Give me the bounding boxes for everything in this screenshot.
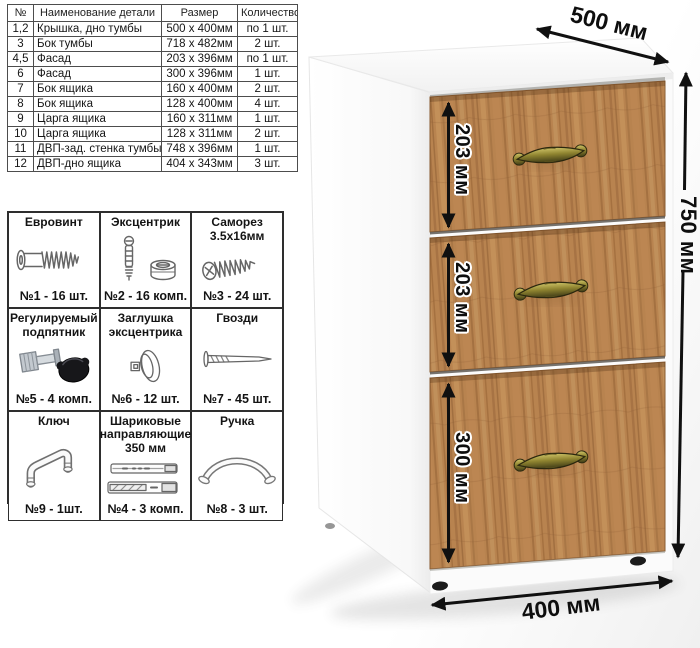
hardware-item-count: №8 - 3 шт. xyxy=(206,502,267,517)
parts-table-cell: Бок ящика xyxy=(34,82,162,97)
hardware-item-count: №2 - 16 комп. xyxy=(104,289,187,304)
hardware-item-count: №9 - 1шт. xyxy=(25,502,83,517)
hardware-item-title: Ключ xyxy=(38,415,70,429)
parts-table-cell: 500 х 400мм xyxy=(162,22,238,37)
parts-table-cell: 6 xyxy=(8,67,34,82)
parts-table-cell: 4 шт. xyxy=(238,97,298,112)
adjustable-foot-icon xyxy=(10,340,98,392)
parts-table-cell: Бок тумбы xyxy=(34,37,162,52)
parts-table: № Наименование детали Размер Количество … xyxy=(7,4,298,172)
hardware-item-title: Шариковые направляющие 350 мм xyxy=(100,415,191,456)
parts-table-cell: Крышка, дно тумбы xyxy=(34,22,162,37)
hardware-item-title: Гвозди xyxy=(216,312,258,326)
parts-table-cell: 1 шт. xyxy=(238,112,298,127)
parts-table-cell: 9 xyxy=(8,112,34,127)
parts-table-cell: 748 х 396мм xyxy=(162,142,238,157)
dimension-drawer-top-label: 203 мм xyxy=(450,124,472,196)
parts-table-body: 1,2Крышка, дно тумбы500 х 400ммпо 1 шт.3… xyxy=(8,22,298,172)
parts-table-header-row: № Наименование детали Размер Количество xyxy=(8,5,298,22)
parts-table-cell: 1 шт. xyxy=(238,142,298,157)
parts-table-cell: ДВП-дно ящика xyxy=(34,157,162,172)
parts-table-cell: 1,2 xyxy=(8,22,34,37)
arrow-height-upper xyxy=(685,73,687,190)
hardware-item-count: №3 - 24 шт. xyxy=(203,289,271,304)
hardware-item-title: Ручка xyxy=(220,415,254,429)
self-tapping-screw-icon xyxy=(193,243,281,289)
cam-cover-icon xyxy=(102,340,190,392)
assembly-instruction-sheet: 500 мм 750 мм 400 мм 203 мм 203 мм 300 м… xyxy=(0,0,700,648)
parts-table-cell: 11 xyxy=(8,142,34,157)
parts-table-cell: 160 х 311мм xyxy=(162,112,238,127)
hardware-item-self-tapping-screw: Саморез 3.5х16мм №3 - 24 шт. xyxy=(191,212,283,308)
hardware-item-hex-key: Ключ №9 - 1шт. xyxy=(8,411,100,521)
parts-table-row: 4,5Фасад203 х 396ммпо 1 шт. xyxy=(8,52,298,67)
hardware-item-count: №1 - 16 шт. xyxy=(20,289,88,304)
parts-table-cell: 4,5 xyxy=(8,52,34,67)
hardware-item-cam-cover: Заглушка эксцентрика №6 - 12 шт. xyxy=(100,308,192,410)
hardware-item-title: Евровинт xyxy=(25,216,83,230)
parts-table-cell: ДВП-зад. стенка тумбы xyxy=(34,142,162,157)
parts-table-row: 1,2Крышка, дно тумбы500 х 400ммпо 1 шт. xyxy=(8,22,298,37)
hardware-item-title: Заглушка эксцентрика xyxy=(102,312,190,339)
parts-table-row: 12ДВП-дно ящика404 х 343мм3 шт. xyxy=(8,157,298,172)
parts-table-cell: 300 х 396мм xyxy=(162,67,238,82)
hardware-item-eccentric-cam: Эксцентрик №2 - 16 комп. xyxy=(100,212,192,308)
parts-table-cell: Бок ящика xyxy=(34,97,162,112)
dimension-drawer-bottom-label: 300 мм xyxy=(450,432,472,504)
parts-table-cell: Фасад xyxy=(34,67,162,82)
parts-table-row: 8Бок ящика128 х 400мм4 шт. xyxy=(8,97,298,112)
parts-table-cell: Царга ящика xyxy=(34,127,162,142)
hardware-item-eurovint-screw: Евровинт №1 - 16 шт. xyxy=(8,212,100,308)
col-header-number: № xyxy=(8,5,34,22)
ball-slides-icon xyxy=(102,456,190,502)
hex-key-icon xyxy=(10,428,98,501)
parts-table-cell: 2 шт. xyxy=(238,127,298,142)
hardware-item-title: Эксцентрик xyxy=(111,216,180,230)
hardware-item-count: №4 - 3 комп. xyxy=(107,502,183,517)
col-header-name: Наименование детали xyxy=(34,5,162,22)
hardware-item-adjustable-foot: Регулируемый подпятник №5 - 4 комп. xyxy=(8,308,100,410)
parts-table-row: 7Бок ящика160 х 400мм2 шт. xyxy=(8,82,298,97)
dimension-height-label: 750 мм xyxy=(675,196,700,274)
parts-table-cell: 12 xyxy=(8,157,34,172)
parts-table-cell: 1 шт. xyxy=(238,67,298,82)
cabinet-side-panel xyxy=(309,57,432,594)
parts-table-cell: 2 шт. xyxy=(238,37,298,52)
hardware-item-title: Саморез 3.5х16мм xyxy=(193,216,281,243)
parts-table-cell: по 1 шт. xyxy=(238,22,298,37)
parts-table-row: 9Царга ящика160 х 311мм1 шт. xyxy=(8,112,298,127)
arrow-height-lower xyxy=(678,272,683,557)
hardware-item-count: №6 - 12 шт. xyxy=(111,392,179,407)
parts-table-cell: 3 xyxy=(8,37,34,52)
bow-handle-icon xyxy=(193,428,281,501)
nail-icon xyxy=(193,326,281,392)
parts-table-row: 11ДВП-зад. стенка тумбы748 х 396мм1 шт. xyxy=(8,142,298,157)
hardware-item-ball-slides: Шариковые направляющие 350 мм №4 - 3 ком… xyxy=(100,411,192,521)
hardware-item-bow-handle: Ручка №8 - 3 шт. xyxy=(191,411,283,521)
parts-table-cell: Фасад xyxy=(34,52,162,67)
hardware-item-count: №5 - 4 комп. xyxy=(16,392,92,407)
parts-table-cell: 128 х 311мм xyxy=(162,127,238,142)
parts-table-cell: 7 xyxy=(8,82,34,97)
parts-table-cell: 10 xyxy=(8,127,34,142)
hardware-legend-grid: Евровинт №1 - 16 шт.Эксцентрик №2 - 16 к… xyxy=(7,211,284,504)
col-header-size: Размер xyxy=(162,5,238,22)
parts-table-row: 10Царга ящика128 х 311мм2 шт. xyxy=(8,127,298,142)
hardware-item-count: №7 - 45 шт. xyxy=(203,392,271,407)
parts-table-cell: Царга ящика xyxy=(34,112,162,127)
parts-table-cell: 3 шт. xyxy=(238,157,298,172)
col-header-quantity: Количество xyxy=(238,5,298,22)
parts-table-cell: 2 шт. xyxy=(238,82,298,97)
eurovint-screw-icon xyxy=(10,230,98,290)
parts-table-cell: 128 х 400мм xyxy=(162,97,238,112)
eccentric-cam-icon xyxy=(102,230,190,290)
parts-table-cell: 718 х 482мм xyxy=(162,37,238,52)
dimension-drawer-middle-label: 203 мм xyxy=(450,262,472,334)
parts-table-cell: 8 xyxy=(8,97,34,112)
parts-table-cell: 160 х 400мм xyxy=(162,82,238,97)
parts-table-cell: 404 х 343мм xyxy=(162,157,238,172)
parts-table-cell: по 1 шт. xyxy=(238,52,298,67)
hardware-item-title: Регулируемый подпятник xyxy=(10,312,98,339)
parts-table-row: 3Бок тумбы718 х 482мм2 шт. xyxy=(8,37,298,52)
parts-table-cell: 203 х 396мм xyxy=(162,52,238,67)
parts-table-row: 6Фасад300 х 396мм1 шт. xyxy=(8,67,298,82)
hardware-item-nail: Гвозди №7 - 45 шт. xyxy=(191,308,283,410)
